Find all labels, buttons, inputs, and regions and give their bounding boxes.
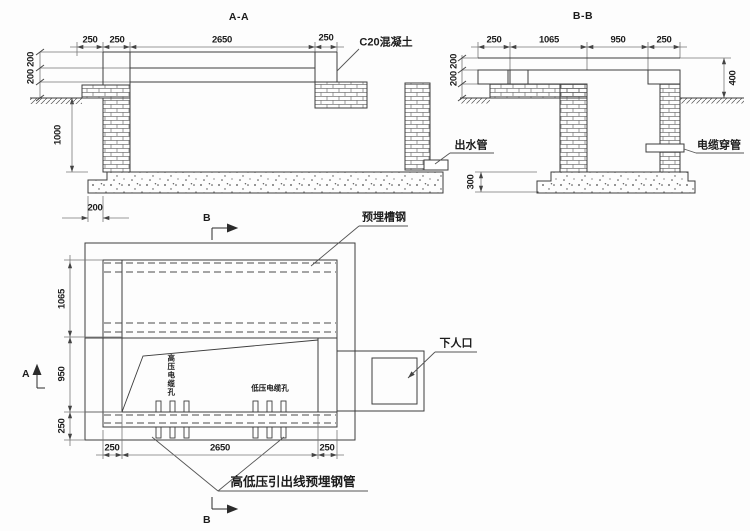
section-aa-linework [30,42,494,222]
dim-label: 1065 [57,289,67,309]
manhole-label: 下人口 [440,339,473,350]
hv-cable-holes-label: 高压电缆孔 [167,354,175,397]
dim-label: 200 200 [449,54,459,86]
dim-label: 250 [657,35,672,45]
dim-label: 950 [57,367,67,382]
dim-label: 2650 [212,35,232,45]
channel-steel-label: 预埋槽钢 [362,213,406,224]
dim-label: 250 [110,35,125,45]
dim-label: 2650 [210,443,230,453]
dim-label: 250 [57,419,67,434]
engineering-drawing-sheet: A-A 250 250 2650 250 C20混凝土 200 200 1000… [0,0,750,531]
dim-label: 200 [88,203,103,213]
dim-label: 400 [728,71,738,86]
section-marker-a: A [22,369,30,380]
dim-label: 250 [83,35,98,45]
dim-label: 250 [487,35,502,45]
dim-label: 300 [466,175,476,190]
section-marker-b-top: B [203,213,211,224]
dim-label: 250 [320,443,335,453]
concrete-label: C20混凝土 [359,38,412,49]
section-bb-linework [458,42,744,193]
dim-label: 200 200 [26,52,36,84]
dim-label: 1065 [539,35,559,45]
plan-view-linework [37,226,477,509]
cable-conduit-label: 电缆穿管 [697,141,741,152]
section-marker-b-bottom: B [203,515,211,526]
outlet-pipes-label: 高低压引出线预埋钢管 [230,476,355,489]
section-bb-title: B-B [573,11,593,22]
outlet-pipe-label: 出水管 [455,141,488,152]
dim-label: 950 [611,35,626,45]
dim-label: 250 [319,33,334,43]
dim-label: 250 [105,443,120,453]
section-aa-title: A-A [229,12,249,23]
dim-label: 1000 [53,125,63,145]
lv-cable-holes-label: 低压电缆孔 [251,384,289,392]
